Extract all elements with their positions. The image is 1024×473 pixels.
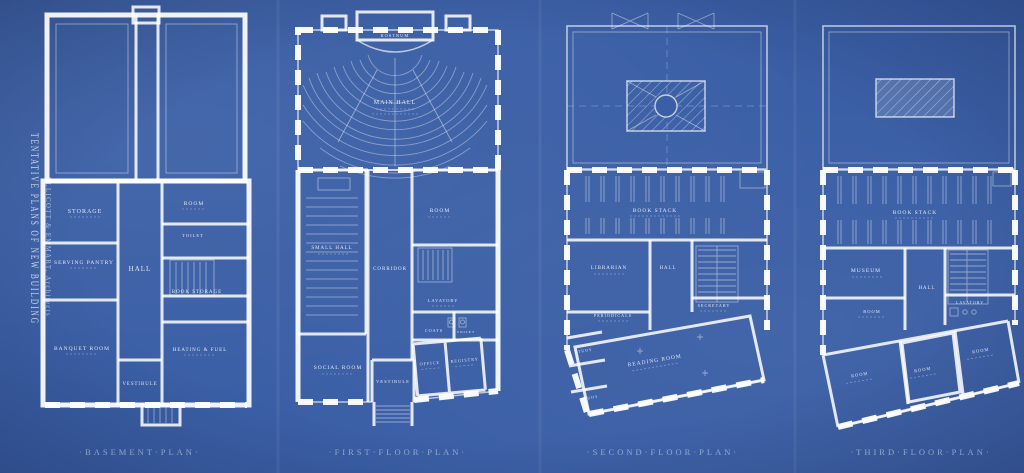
bottom-rooms: ROOM ROOM ROOM: [823, 321, 1019, 427]
room-label-book-stack: BOOK STACK: [893, 210, 938, 216]
room-label-hall: HALL: [660, 266, 677, 271]
second-floor-caption: ·SECOND·FLOOR·PLAN·: [587, 447, 739, 457]
room-label-corridor: CORRIDOR: [373, 267, 407, 272]
small-hall: [306, 170, 366, 334]
room-label-room: ROOM: [184, 201, 205, 207]
room-label-vestibule: VESTIBULE: [376, 379, 410, 384]
room-label-lavatory: LAVATORY: [428, 298, 459, 303]
room-label-periodicals: PERIODICALS: [594, 313, 632, 318]
room-label-lavatory: LAVATORY: [956, 300, 984, 305]
book-stack-shelving: [838, 172, 1011, 244]
room-label-coats: COATS: [425, 328, 443, 333]
first-floor-plan: ROSTRUM MAIN HALL SMALL HALL CORRIDOR RO…: [298, 12, 498, 426]
room-label-room: ROOM: [430, 208, 451, 214]
room-label-registry: REGISTRY: [450, 356, 479, 363]
lavatory-fixtures: [950, 308, 976, 316]
entry-side-rooms: OFFICE REGISTRY: [413, 338, 485, 396]
room-label-book-stack: BOOK STACK: [633, 208, 678, 214]
room-label-office: OFFICE: [419, 360, 440, 367]
room-label-vestibule: VESTIBULE: [122, 382, 157, 387]
blueprint-drawing: TENTATIVE PLANS OF NEW BUILDING ELLICOTT…: [0, 0, 1024, 473]
room-label-hall: HALL: [129, 265, 152, 273]
first-floor-caption: ·FIRST·FLOOR·PLAN·: [329, 447, 468, 457]
room-label-room-1: ROOM: [863, 309, 881, 314]
lavatory-fixtures: [448, 318, 466, 327]
room-label-librarian: LIBRARIAN: [591, 266, 627, 271]
auditorium-seating: [303, 55, 487, 178]
reading-room: [575, 316, 764, 414]
first-floor-stairs: [418, 248, 452, 282]
basement-plan: STORAGE ROOM SERVING PANTRY HALL TOILET …: [43, 7, 249, 425]
room-label-secretary: SECRETARY: [698, 303, 731, 308]
second-floor-plan: BOOK STACK LIBRARIAN HALL SECRETARY PERI…: [567, 13, 767, 416]
rostrum-platform: [322, 12, 470, 52]
room-label-reading-room: READING ROOM: [627, 354, 682, 369]
room-label-museum: MUSEUM: [851, 268, 881, 274]
room-label-storage: STORAGE: [68, 209, 103, 215]
third-floor-caption: ·THIRD·FLOOR·PLAN·: [850, 447, 991, 457]
room-label-small-hall: SMALL HALL: [311, 246, 352, 251]
entrance-steps: [374, 402, 412, 426]
room-label-room-2: ROOM: [851, 371, 869, 379]
room-label-room-4: ROOM: [972, 347, 990, 355]
room-label-heating-fuel: HEATING & FUEL: [173, 348, 228, 353]
sheet-title: TENTATIVE PLANS OF NEW BUILDING: [28, 133, 40, 325]
room-label-social-room: SOCIAL ROOM: [314, 365, 363, 371]
room-label-study-2: STUDY: [581, 395, 599, 402]
basement-caption: ·BASEMENT·PLAN·: [79, 447, 201, 457]
second-floor-stairs: [696, 246, 738, 302]
room-label-main-hall: MAIN HALL: [374, 100, 417, 106]
book-stack-shelving: [586, 172, 765, 234]
room-label-room-3: ROOM: [914, 366, 932, 374]
room-label-toilet: TOILET: [457, 330, 475, 334]
third-floor-plan: BOOK STACK MUSEUM HALL ROOM LAVATORY ROO…: [823, 26, 1019, 427]
room-label-book-storage: BOOK STORAGE: [172, 290, 222, 295]
room-label-banquet-room: BANQUET ROOM: [54, 346, 110, 352]
room-label-serving-pantry: SERVING PANTRY: [54, 260, 114, 266]
room-label-hall: HALL: [919, 286, 936, 291]
room-label-rostrum: ROSTRUM: [381, 33, 410, 38]
skylight: [627, 81, 705, 131]
blueprint-sheet: TENTATIVE PLANS OF NEW BUILDING ELLICOTT…: [0, 0, 1024, 473]
room-label-toilet: TOILET: [182, 233, 204, 238]
roof-skylight: [876, 79, 954, 117]
